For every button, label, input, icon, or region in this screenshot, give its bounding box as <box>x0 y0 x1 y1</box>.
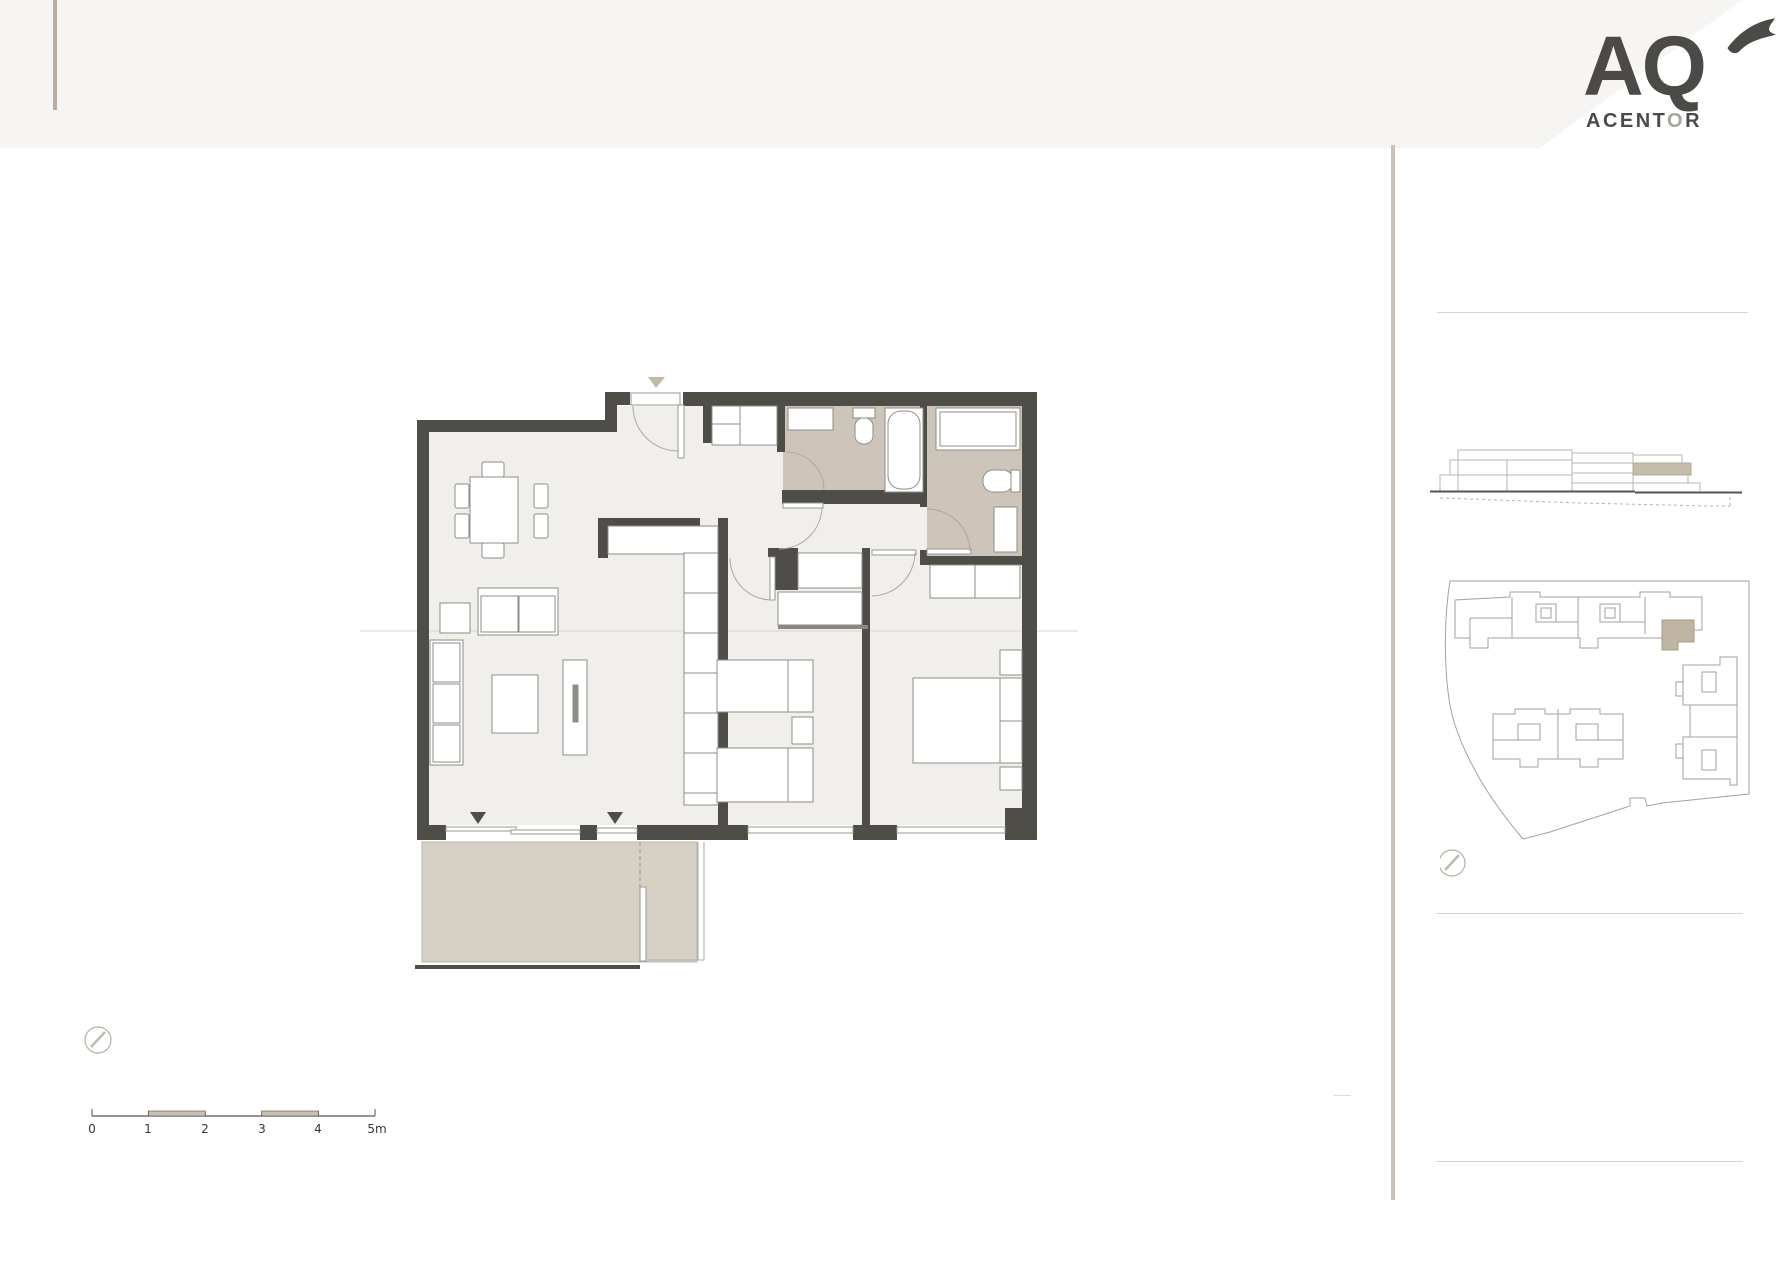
ensuite-door-leaf <box>927 549 971 554</box>
kitchen-counter <box>608 526 718 554</box>
bathtub-inner <box>888 411 920 489</box>
coffee-table <box>492 675 538 733</box>
chair <box>455 484 469 508</box>
chair <box>534 484 548 508</box>
bedroom1-wardrobe-2 <box>778 592 862 625</box>
toilet <box>855 418 873 444</box>
entry-marker-triangle <box>648 377 665 388</box>
washbasin-counter <box>788 408 833 430</box>
bedroom2-window <box>897 827 1005 833</box>
plan-sheet: AQ ACENTOR <box>0 0 1785 1262</box>
entry-door-leaf <box>678 405 684 458</box>
single-bed <box>717 660 813 712</box>
building-cluster-right <box>1676 657 1737 785</box>
ensuite-toilet-tank <box>1011 470 1020 492</box>
sidebar-separator-middle <box>1436 913 1743 914</box>
chair <box>482 543 504 558</box>
scale-label-3: 3 <box>258 1122 266 1136</box>
ensuite-cabinet <box>994 507 1017 552</box>
bedroom2-door-leaf <box>872 550 916 555</box>
toilet-tank <box>853 408 875 418</box>
tv-screen <box>573 685 578 722</box>
highlighted-floor <box>1633 463 1691 475</box>
nightstand <box>1000 650 1022 675</box>
sofa-cushion <box>481 596 518 632</box>
bedroom1-door-leaf <box>770 557 775 600</box>
sofa-cushion <box>519 596 555 632</box>
tick-mark <box>1333 1095 1351 1096</box>
entry-door-opening <box>631 393 680 405</box>
ensuite-counter-inner <box>940 412 1016 446</box>
sofa-cushion <box>433 643 460 682</box>
north-arrow-icon <box>1440 850 1465 876</box>
scale-label-5m: 5m <box>367 1122 386 1136</box>
scale-label-2: 2 <box>201 1122 209 1136</box>
chair <box>482 462 504 477</box>
nightstand <box>792 717 813 744</box>
building-cluster-middle <box>1493 709 1623 767</box>
single-bed-2 <box>717 748 813 802</box>
scale-label-1: 1 <box>144 1122 152 1136</box>
side-table <box>440 603 470 633</box>
scale-label-4: 4 <box>314 1122 322 1136</box>
chair <box>455 514 469 538</box>
sliding-door-panel <box>446 827 516 831</box>
site-plan <box>1440 572 1760 877</box>
terrace-floor <box>422 842 697 962</box>
dining-table <box>470 477 518 543</box>
wardrobe-base <box>778 625 868 629</box>
entry-closet <box>712 406 777 445</box>
sofa-cushion <box>433 725 460 762</box>
scale-label-0: 0 <box>88 1122 96 1136</box>
scale-bar <box>92 1109 375 1116</box>
terrace-door-glазing <box>597 828 637 833</box>
highlighted-unit <box>1662 620 1694 650</box>
kitchen-units <box>684 553 718 805</box>
sliding-door-panel-2 <box>511 830 580 834</box>
sidebar-separator-top <box>1437 312 1748 313</box>
bedroom1-wardrobe <box>798 553 862 588</box>
chair <box>534 514 548 538</box>
terrace-edge <box>415 965 640 969</box>
building-elevation <box>1430 430 1750 520</box>
nightstand <box>1000 767 1022 790</box>
sofa-cushion <box>433 684 460 723</box>
sidebar-separator-bottom <box>1436 1161 1743 1162</box>
sidebar-divider <box>1391 145 1395 1200</box>
parcel-boundary <box>1445 581 1749 839</box>
compass-icon <box>85 1027 111 1053</box>
ensuite-toilet <box>983 470 1013 492</box>
bedroom1-window <box>748 827 853 833</box>
corridor-door-leaf <box>783 503 823 508</box>
